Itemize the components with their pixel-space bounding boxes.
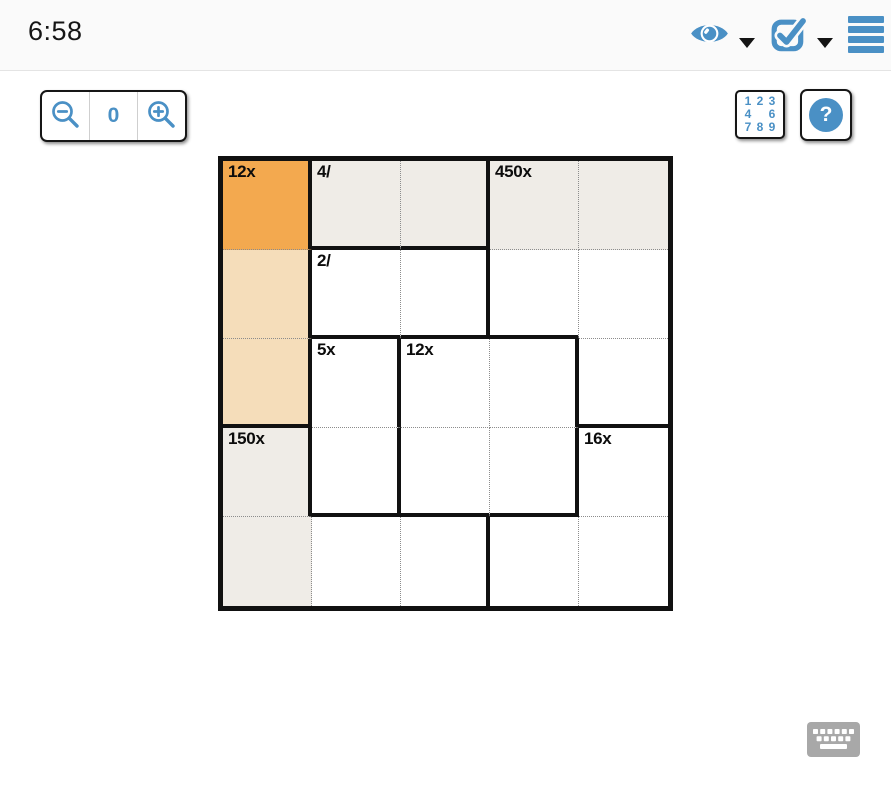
keyboard-icon [807,745,860,760]
board-cell-r0c3[interactable]: 450x [490,161,579,250]
reveal-menu-button[interactable] [690,19,729,51]
board-cell-r2c3[interactable] [490,339,579,428]
help-button[interactable]: ? [800,89,852,141]
board-cell-r1c1[interactable]: 2/ [312,250,401,339]
number-pad-button[interactable]: 12346789 [735,90,785,139]
zoom-level-value: 0 [89,92,138,140]
caret-down-icon [817,38,833,48]
eye-icon [690,19,729,51]
board-cell-r4c1[interactable] [312,517,401,606]
board-cell-r2c0[interactable] [223,339,312,428]
zoom-in-button[interactable] [138,92,185,140]
cage-label: 16x [584,429,611,449]
cage-label: 2/ [317,251,331,271]
check-dropdown-caret[interactable] [817,22,833,48]
timer: 6:58 [28,16,83,47]
cage-label: 12x [228,162,255,182]
cage-label: 150x [228,429,265,449]
board-cell-r3c1[interactable] [312,428,401,517]
board-cell-r1c4[interactable] [579,250,668,339]
cage-label: 12x [406,340,433,360]
zoom-panel: 0 [40,90,187,142]
cage-label: 4/ [317,162,331,182]
reveal-dropdown-caret[interactable] [739,22,755,48]
caret-down-icon [739,38,755,48]
zoom-out-icon [50,99,81,133]
board-cell-r3c4[interactable]: 16x [579,428,668,517]
checkbox-check-icon [771,15,807,55]
main-menu-button[interactable] [848,15,884,56]
keyboard-toggle-button[interactable] [807,722,860,757]
cage-label: 450x [495,162,532,182]
check-menu-button[interactable] [771,15,807,55]
board-cell-r0c1[interactable]: 4/ [312,161,401,250]
board-cell-r4c2[interactable] [401,517,490,606]
board-cell-r1c3[interactable] [490,250,579,339]
board-cell-r0c0[interactable]: 12x [223,161,312,250]
board-cell-r4c3[interactable] [490,517,579,606]
board-cell-r2c1[interactable]: 5x [312,339,401,428]
question-circle-icon: ? [809,98,843,132]
board-cell-r3c0[interactable]: 150x [223,428,312,517]
board-cell-r2c4[interactable] [579,339,668,428]
board-cell-r1c2[interactable] [401,250,490,339]
top-toolbar [690,0,884,70]
board-cell-r0c4[interactable] [579,161,668,250]
top-bar: 6:58 [0,0,891,71]
board-cell-r3c3[interactable] [490,428,579,517]
board-cell-r3c2[interactable] [401,428,490,517]
board-cell-r1c0[interactable] [223,250,312,339]
cage-label: 5x [317,340,335,360]
board-cell-r2c2[interactable]: 12x [401,339,490,428]
menu-icon [848,15,884,56]
board-cell-r4c0[interactable] [223,517,312,606]
number-grid-icon: 12346789 [742,95,778,134]
board-cell-r4c4[interactable] [579,517,668,606]
zoom-out-button[interactable] [42,92,89,140]
board-cell-r0c2[interactable] [401,161,490,250]
zoom-in-icon [146,99,177,133]
board: 12x4/450x2/5x12x150x16x [218,156,673,611]
